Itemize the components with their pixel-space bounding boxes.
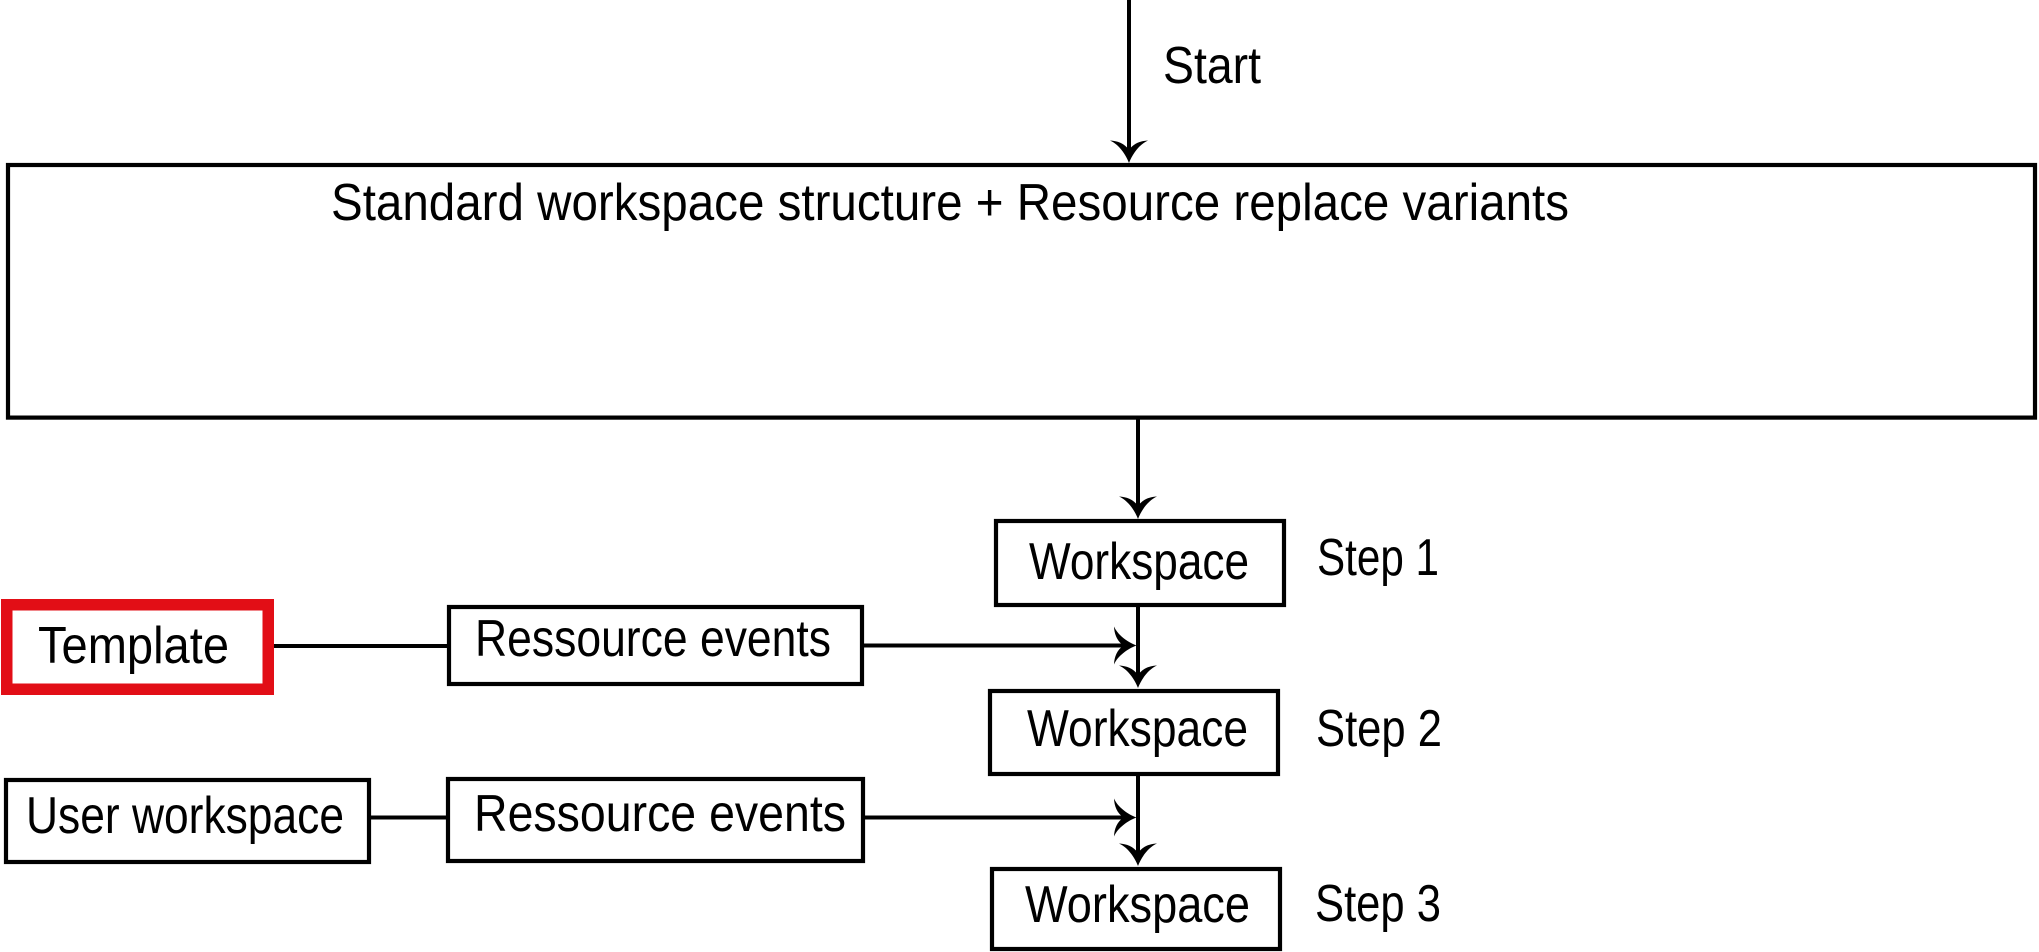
svg-text:Template: Template [38,617,229,675]
svg-text:Step 1: Step 1 [1317,529,1439,587]
svg-text:Workspace: Workspace [1029,533,1249,591]
svg-text:Workspace: Workspace [1025,876,1250,934]
svg-text:Workspace: Workspace [1027,700,1248,758]
svg-text:Ressource events: Ressource events [474,785,846,843]
svg-text:Standard workspace structure +: Standard workspace structure + Resource … [331,174,1569,232]
svg-text:User workspace: User workspace [26,787,344,845]
svg-text:Start: Start [1163,37,1261,95]
svg-text:Ressource events: Ressource events [475,610,831,668]
svg-text:Step 3: Step 3 [1315,875,1441,933]
svg-text:Step 2: Step 2 [1316,700,1442,758]
